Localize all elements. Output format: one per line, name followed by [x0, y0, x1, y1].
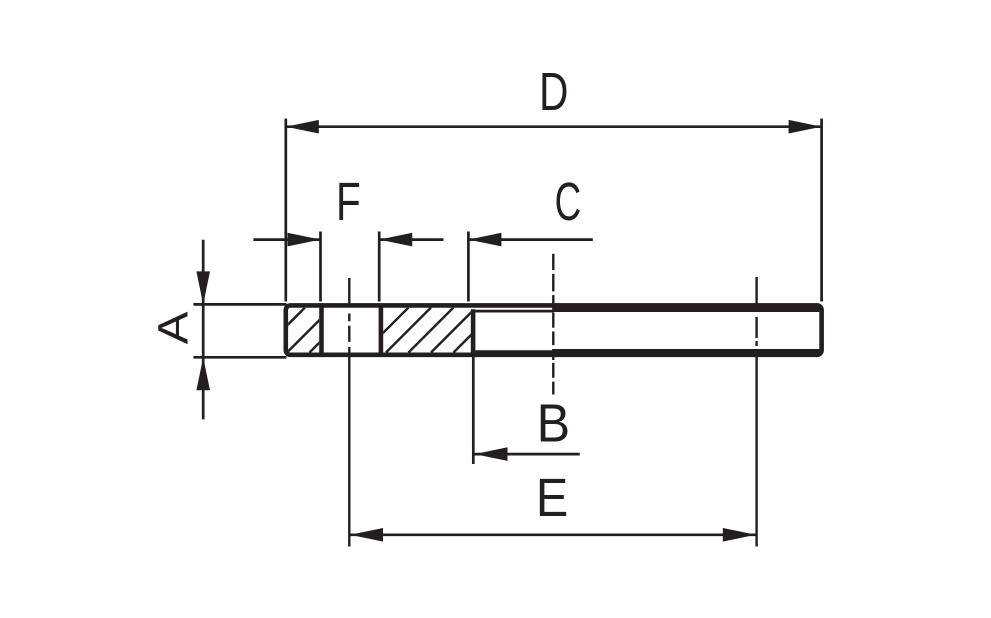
svg-text:C: C [555, 171, 582, 232]
svg-text:B: B [537, 394, 570, 454]
svg-text:F: F [336, 172, 361, 232]
svg-text:A: A [149, 311, 197, 344]
svg-text:D: D [539, 62, 568, 122]
svg-text:E: E [536, 467, 568, 528]
